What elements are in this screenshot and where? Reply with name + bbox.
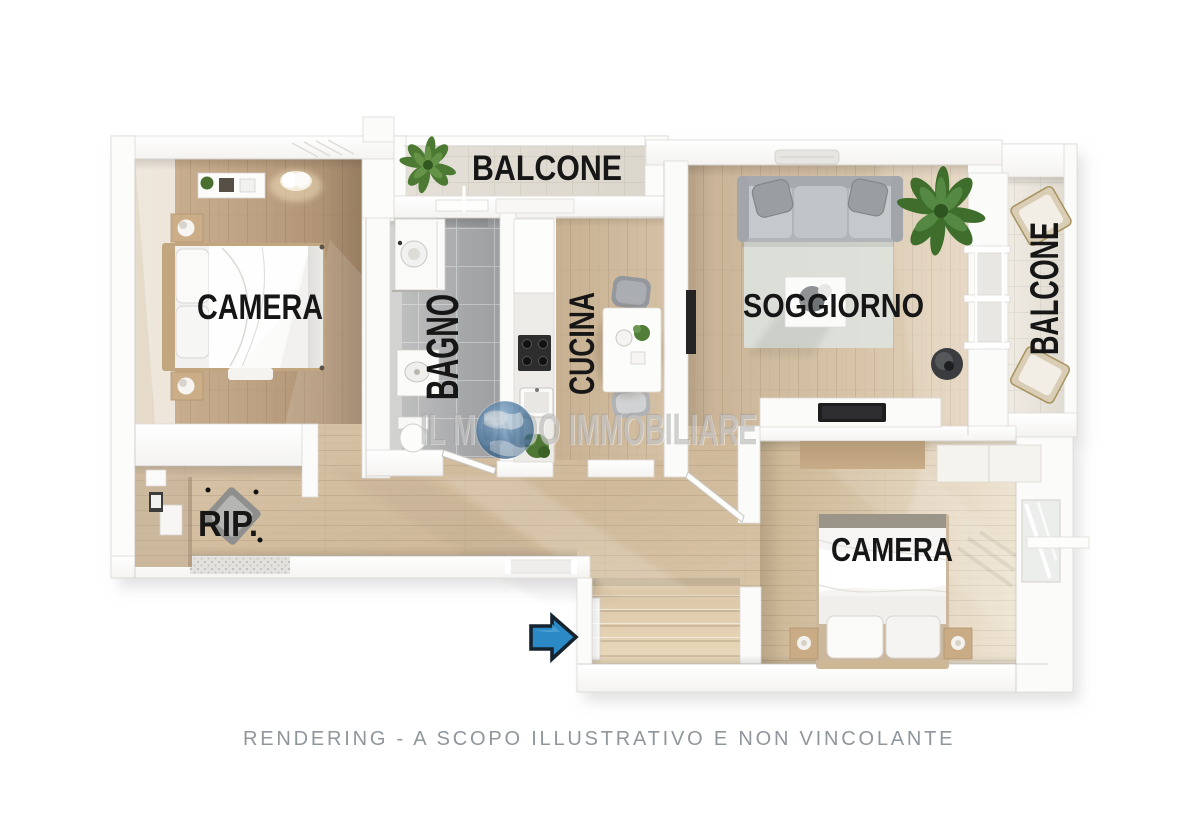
svg-text:SOGGIORNO: SOGGIORNO: [743, 287, 924, 324]
svg-text:CAMERA: CAMERA: [831, 531, 953, 568]
svg-text:RIP.: RIP.: [198, 503, 258, 544]
svg-text:BALCONE: BALCONE: [472, 149, 622, 188]
svg-text:BAGNO: BAGNO: [417, 294, 468, 400]
svg-text:IL MONDO IMMOBILIARE: IL MONDO IMMOBILIARE: [420, 405, 757, 454]
svg-text:CAMERA: CAMERA: [197, 288, 323, 327]
svg-text:RENDERING - A SCOPO ILLUSTRATI: RENDERING - A SCOPO ILLUSTRATIVO E NON V…: [243, 728, 959, 750]
svg-text:CUCINA: CUCINA: [563, 292, 602, 395]
svg-text:BALCONE: BALCONE: [1023, 222, 1067, 355]
